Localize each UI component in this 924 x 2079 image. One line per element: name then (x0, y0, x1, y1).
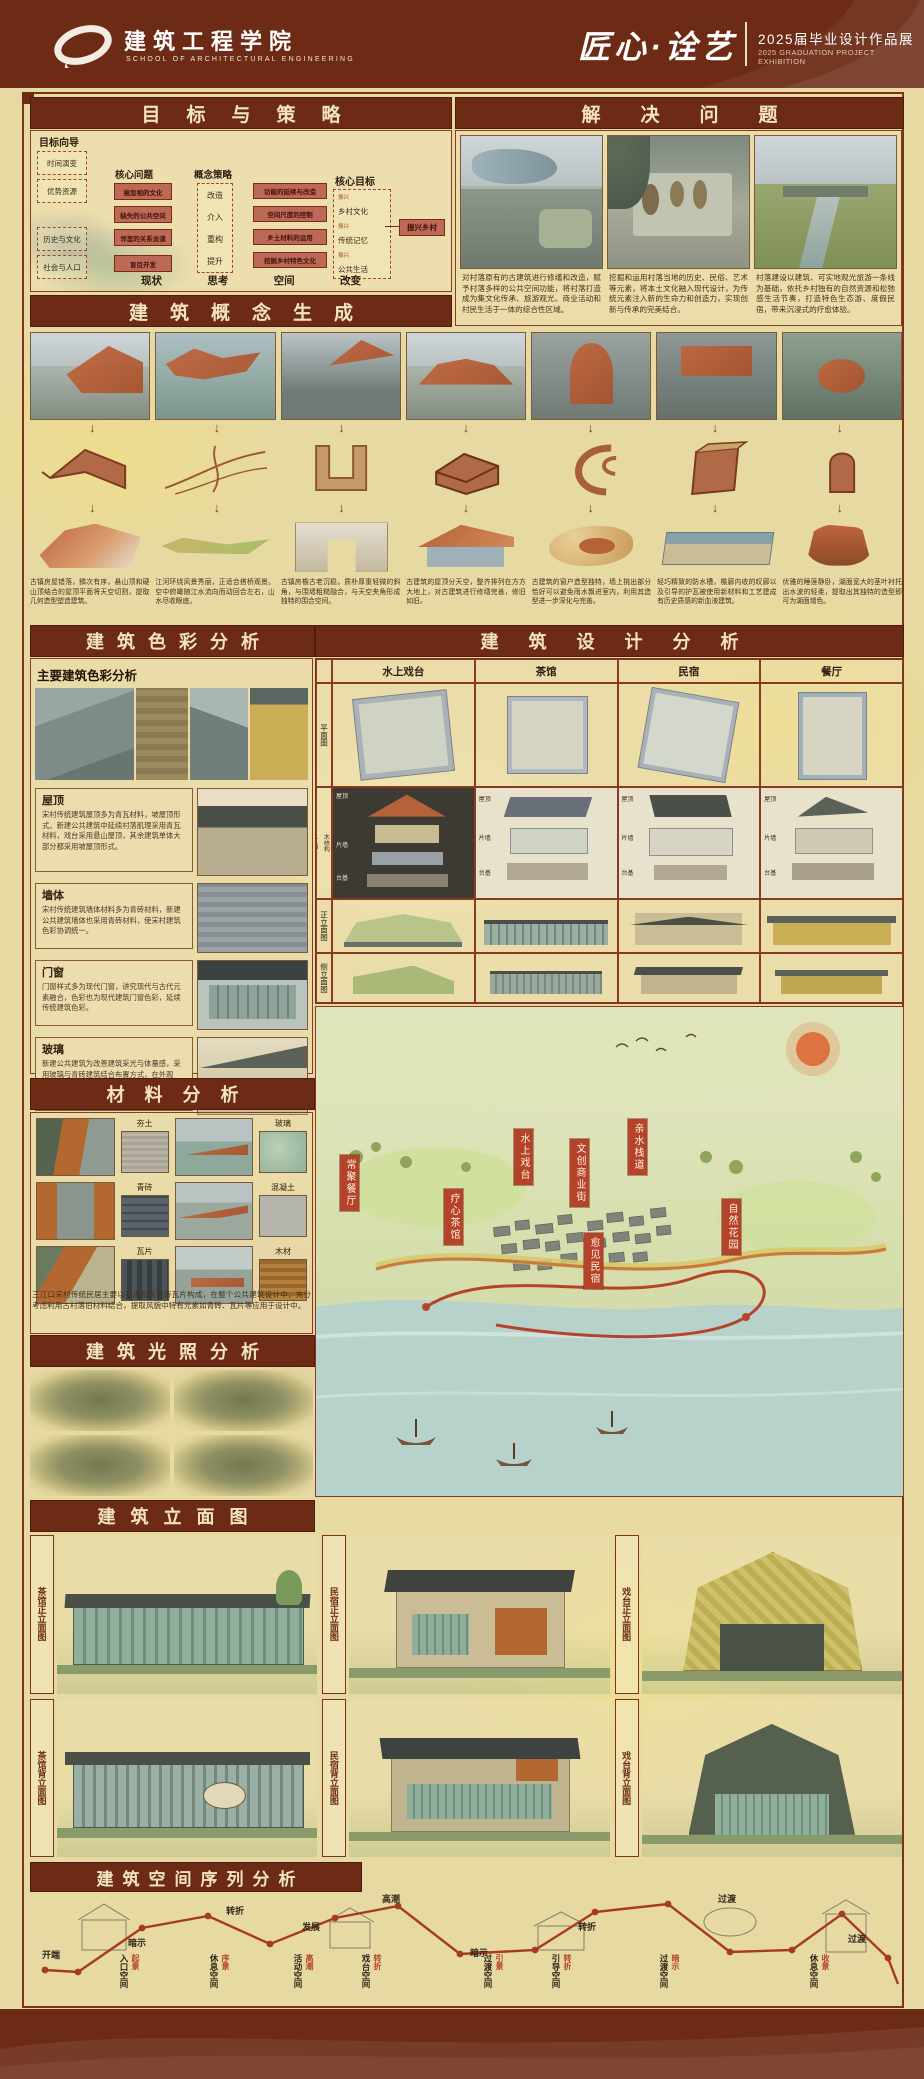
concept-model-hall (406, 518, 526, 574)
problem-paragraph: 村落建设以建筑、可实地观光旅游一条线为基础，依托乡村独有的自然资源和松弛感生活节… (756, 273, 895, 316)
concept-model-lotus (782, 518, 902, 574)
keyword: 空间 (274, 273, 295, 288)
village-aerial-photo (460, 135, 603, 269)
arrow-down-icon: ↓ (528, 500, 653, 515)
elevation-cell: 戏台背立面图 (615, 1699, 902, 1858)
sketch-roof-corner-icon (30, 438, 150, 500)
color-title: 建筑色彩分析 (73, 628, 272, 654)
rammed-earth-swatch (121, 1131, 169, 1173)
wall-render-photo (197, 883, 308, 953)
sequence-banner: 建筑空间序列分析 (30, 1862, 362, 1892)
problems-title: 解决问题 (541, 100, 817, 127)
seq-space-name: 休息空间 (808, 1954, 820, 1988)
concept-sketch-row (30, 438, 902, 500)
sketch-flow-curves-icon (155, 438, 275, 500)
seq-space: 休息空间 序景 (208, 1954, 231, 1988)
strategy-box: 改造 介入 重构 提升 (197, 183, 233, 273)
seq-space-tag: 引景 (494, 1954, 505, 1988)
glass-context-photo (175, 1118, 254, 1176)
goal-item-small: 振兴 (338, 222, 349, 230)
seq-stage-label: 过渡 (848, 1932, 866, 1945)
seq-stage-label: 发展 (302, 1920, 320, 1933)
arrow-down-icon: ↓ (777, 420, 902, 435)
seq-space-tag: 转折 (372, 1954, 383, 1988)
goal-guide-label: 目标向导 (39, 134, 79, 149)
color-banner: 建筑色彩分析 (30, 625, 315, 657)
seq-space-name: 活动空间 (292, 1954, 304, 1988)
problem-column: 村落建设以建筑、可实地观光旅游一条线为基础，依托乡村独有的自然资源和松弛感生活节… (754, 135, 897, 321)
concept-caption-row: 古镇房屋错落，鳞次有序，悬山顶和硬山顶结合的屋顶平面将天空切割，提取几何造型塑造… (30, 578, 902, 607)
design-table: 水上戏台 茶馆 民宿 餐厅 平面图 屋顶 爆炸分析图 木结构 片墙 台基 屋顶 … (315, 658, 904, 1004)
masterplan-tag-boardwalk: 亲水栈道 (628, 1119, 647, 1175)
side-cell-homestay (618, 953, 761, 1003)
front-cell-stage (332, 899, 475, 953)
measure-box: 挖掘乡村特色文化 (253, 252, 327, 268)
core-problems-label: 核心问题 (115, 167, 153, 181)
seq-space-name: 戏台空间 (360, 1954, 372, 1988)
material-item: 混凝土 (259, 1182, 307, 1240)
homestay-back-art (349, 1699, 609, 1858)
arrow-down-icon: ↓ (404, 500, 529, 515)
concept-caption: 轻巧精致的防水槽，檐廊内收的叹廊以及引导的护瓦被使用新材料和工艺建成有历史质感的… (657, 578, 776, 607)
problem-column: 挖掘和运用村落当地的历史、民俗、艺术等元素，将本土文化融入现代设计，为传统元素注… (607, 135, 750, 321)
front-cell-homestay (618, 899, 761, 953)
school-name-en: SCHOOL OF ARCHITECTURAL ENGINEERING (126, 56, 355, 63)
wall-box-text: 宋村传统建筑墙体材料多为青砖材料，新建公共建筑墙体也采用青砖材料，使宋村建筑色彩… (42, 905, 186, 937)
masterplan-tag-restaurant: 常聚餐厅 (340, 1155, 359, 1211)
arrow-down-icon: ↓ (30, 500, 155, 515)
input-box: 时间演变 (37, 151, 87, 175)
sketch-arch-door-icon (782, 438, 902, 500)
roof-row: 屋顶 宋村传统建筑屋顶多为青瓦材料，坡屋顶形式。新建公共建筑中延续村落肌理采用青… (35, 788, 308, 876)
seq-space: 过渡空间 引景 (482, 1954, 505, 1988)
arrow-down-icon: ↓ (404, 420, 529, 435)
gable-photo (190, 688, 248, 780)
roof-box-text: 宋村传统建筑屋顶多为青瓦材料，坡屋顶形式。新建公共建筑中延续村落肌理采用青瓦材料… (42, 810, 186, 852)
table-corner (316, 659, 332, 683)
measure-box: 功能的延续与改造 (253, 183, 327, 199)
seq-space: 戏台空间 转折 (360, 1954, 383, 1988)
seq-stage-label: 转折 (226, 1904, 244, 1917)
flow-connector (385, 226, 399, 227)
col-header-restaurant: 餐厅 (760, 659, 903, 683)
explode-cell-stage: 屋顶 片墙 台基 (332, 787, 475, 899)
exhibition-title: 匠心·诠艺 (578, 22, 737, 68)
color-panel: 主要建筑色彩分析 屋顶 宋村传统建筑屋顶多为青瓦材料，坡屋顶形式。新建公共建筑中… (30, 658, 313, 1074)
wall-photo (35, 688, 134, 780)
row-label-front: 正立面图 (316, 899, 332, 953)
seq-space-tag: 收景 (820, 1954, 831, 1988)
concept-arrow-row-2: ↓ ↓ ↓ ↓ ↓ ↓ ↓ (30, 500, 902, 515)
arrow-down-icon: ↓ (279, 500, 404, 515)
strategy-item: 改造 (207, 190, 223, 201)
masterplan-tag-stage: 水上戏台 (514, 1129, 533, 1185)
sequence-path (30, 1892, 902, 2004)
elevation-cell: 戏台正立面图 (615, 1535, 902, 1694)
arrow-down-icon: ↓ (528, 420, 653, 435)
seq-space-tag: 起景 (130, 1954, 141, 1988)
seq-stage-label: 过渡 (718, 1892, 736, 1905)
concept-photo-gate (531, 332, 651, 420)
wall-row: 墙体 宋村传统建筑墙体材料多为青砖材料，新建公共建筑墙体也采用青砖材料，使宋村建… (35, 883, 308, 953)
masterplan-panel: 常聚餐厅 水上戏台 文创商业街 亲水栈道 疗心茶馆 愈见民宿 自然花园 (315, 1006, 904, 1497)
keywords-row: 现状 思考 空间 改变 (141, 273, 361, 288)
sunlight-study-image (30, 1370, 170, 1431)
concept-banner: 建筑概念生成 (30, 295, 452, 327)
sunlight-study-image (30, 1435, 170, 1496)
explode-cell-homestay: 屋顶 片墙 台基 (618, 787, 761, 899)
stage-back-art (642, 1699, 902, 1858)
window-box-text: 门窗样式多为现代门窗，讲究现代与古代元素融合，色彩也为现代建筑门窗色彩，延续传统… (42, 982, 186, 1014)
strategy-item: 介入 (207, 212, 223, 223)
concept-caption: 古镇房檐古老沉稳，质朴厚重轻微的斜角，与围墙粗糙融合，与天空夹角形成独特的围合空… (281, 578, 400, 607)
explode-cell-teahouse: 屋顶 片墙 台基 (475, 787, 618, 899)
problem-paragraph: 挖掘和运用村落当地的历史、民俗、艺术等元素，将本土文化融入现代设计，为传统元素注… (609, 273, 748, 316)
elevation-label: 民宿背立面图 (322, 1699, 346, 1858)
elevation-label: 民宿正立面图 (322, 1535, 346, 1694)
concept-title: 建筑概念生成 (107, 298, 375, 325)
color-collage (35, 688, 308, 780)
elevation-cell: 茶馆正立面图 (30, 1535, 317, 1694)
seq-stage-label: 高潮 (382, 1892, 400, 1905)
seq-space-tag: 高潮 (304, 1954, 315, 1988)
masterplan-illustration (316, 1007, 903, 1496)
measure-box: 空间尺度的控制 (253, 206, 327, 222)
teahouse-back-art (57, 1699, 317, 1858)
core-goal-label: 核心目标 (335, 173, 375, 188)
concrete-path-photo (175, 1182, 254, 1240)
cell-part: 片墙 (622, 834, 634, 845)
material-row: 夯土 玻璃 (36, 1118, 307, 1176)
cell-part: 屋顶 (336, 792, 348, 803)
seq-stage-label: 转折 (578, 1920, 596, 1933)
seq-space-name: 入口空间 (118, 1954, 130, 1988)
cell-part: 屋顶 (622, 795, 634, 806)
concept-model-theater (30, 518, 150, 574)
concept-model-curve (531, 518, 651, 574)
design-title: 建筑设计分析 (451, 628, 769, 654)
side-cell-teahouse (475, 953, 618, 1003)
concept-photo-window (656, 332, 776, 420)
material-row: 青砖 混凝土 (36, 1182, 307, 1240)
cell-part: 屋顶 (764, 795, 776, 806)
arrow-down-icon: ↓ (155, 500, 280, 515)
seq-space-name: 过渡空间 (482, 1954, 494, 1988)
poster-root: { "header": { "school_cn": "建筑工程学院", "sc… (0, 0, 924, 2079)
problems-panel: 对村落原有的古建筑进行修缮和改造，赋予村落多样的公共空间功能，将村落打造成为集文… (455, 130, 902, 326)
col-header-homestay: 民宿 (618, 659, 761, 683)
goals-title: 目标与策略 (115, 100, 366, 127)
sketch-wall-slab-icon (656, 438, 776, 500)
keyword: 现状 (141, 273, 162, 288)
window-row: 门窗 门窗样式多为现代门窗，讲究现代与古代元素融合，色彩也为现代建筑门窗色彩，延… (35, 960, 308, 1030)
row-label-side: 侧立面图 (316, 953, 332, 1003)
materials-banner: 材料分析 (30, 1078, 315, 1110)
material-label: 青砖 (121, 1182, 169, 1193)
masterplan-tag-street: 文创商业街 (570, 1139, 589, 1207)
elevation-label: 茶馆背立面图 (30, 1699, 54, 1858)
brick-lane-photo (36, 1182, 115, 1240)
problem-box: 缺失的公共空间 (114, 206, 172, 223)
keyword: 改变 (340, 273, 361, 288)
seq-space: 休息空间 收景 (808, 1954, 831, 1988)
goals-flowchart: 目标向导 时间演变 优势资源 历史与文化 社会与人口 核心问题 被忽视的文化 缺… (30, 130, 452, 292)
seq-space: 过渡空间 暗示 (658, 1954, 681, 1988)
explode-cell-restaurant: 屋顶 片墙 台基 (760, 787, 903, 899)
concept-caption: 优雅的睡莲静卧，湖面宽大的茎叶衬托出水波的轻柔，提取出其独特的造型即可为湖面增色… (783, 578, 902, 607)
culture-wall-photo (607, 135, 750, 269)
plan-cell-teahouse (475, 683, 618, 787)
sunlight-study-image (174, 1370, 314, 1431)
concept-photo-roofs (406, 332, 526, 420)
window-render-photo (197, 960, 308, 1030)
plan-cell-stage (332, 683, 475, 787)
material-label: 木材 (259, 1246, 307, 1257)
seq-space-tag: 暗示 (670, 1954, 681, 1988)
elevation-cell: 民宿背立面图 (322, 1699, 609, 1858)
arrow-down-icon: ↓ (653, 420, 778, 435)
plan-cell-homestay (618, 683, 761, 787)
concept-photo-row (30, 332, 902, 420)
goal-item-small: 振兴 (338, 193, 349, 201)
plan-cell-restaurant (760, 683, 903, 787)
concept-photo-lotus (782, 332, 902, 420)
sequence-diagram: 开端 暗示 转折 发展 高潮 暗示 转折 过渡 过渡 入口空间 起景 休息空间 … (30, 1892, 902, 2004)
cell-part: 台基 (764, 869, 776, 880)
goal-item: 乡村文化 (338, 206, 368, 217)
problem-box: 盲目开发 (114, 255, 172, 272)
strategy-label: 概念策略 (194, 167, 232, 181)
elevation-cell: 民宿正立面图 (322, 1535, 609, 1694)
concept-model-longhouse (656, 518, 776, 574)
teahouse-front-art (57, 1535, 317, 1694)
problem-column: 对村落原有的古建筑进行修缮和改造，赋予村落多样的公共空间功能，将村落打造成为集文… (460, 135, 603, 321)
concept-caption: 古建筑的窗户造型独特，墙上挑出部分恰好可以避免雨水飘进室内，利用其造型进一步深化… (532, 578, 651, 607)
cell-part: 片墙 (336, 841, 348, 852)
header-divider (745, 22, 747, 66)
header-bar: 建筑工程学院 SCHOOL OF ARCHITECTURAL ENGINEERI… (0, 0, 924, 88)
explode-part: 木结构 (319, 834, 330, 852)
problem-paragraph: 对村落原有的古建筑进行修缮和改造，赋予村落多样的公共空间功能，将村落打造成为集文… (462, 273, 601, 316)
goal-item-small: 振兴 (338, 251, 349, 259)
school-logo-icon (52, 22, 114, 68)
footer-swoosh-decoration (0, 2009, 924, 2079)
material-label: 玻璃 (259, 1118, 307, 1129)
strategy-item: 提升 (207, 256, 223, 267)
masterplan-tag-teahouse: 疗心茶馆 (444, 1189, 463, 1245)
design-banner: 建筑设计分析 (315, 625, 904, 657)
material-item: 玻璃 (259, 1118, 307, 1176)
seq-space-tag: 序景 (220, 1954, 231, 1988)
window-box: 门窗 门窗样式多为现代门窗，讲究现代与古代元素融合，色彩也为现代建筑门窗色彩，延… (35, 960, 193, 1026)
wall-box: 墙体 宋村传统建筑墙体材料多为青砖材料，新建公共建筑墙体也采用青砖材料，使宋村建… (35, 883, 193, 949)
cell-part: 台基 (336, 874, 348, 885)
row-label-explode: 屋顶 爆炸分析图 木结构 片墙 台基 (316, 787, 332, 899)
measure-box: 乡土材料的运用 (253, 229, 327, 245)
seq-space: 引导空间 转折 (550, 1954, 573, 1988)
seq-space-name: 引导空间 (550, 1954, 562, 1988)
seq-space-tag: 转折 (562, 1954, 573, 1988)
lighting-banner: 建筑光照分析 (30, 1335, 315, 1367)
materials-title: 材料分析 (87, 1081, 259, 1107)
keyword: 思考 (207, 273, 228, 288)
sketch-house-icon (406, 438, 526, 500)
window-box-title: 门窗 (42, 964, 186, 980)
material-item: 青砖 (121, 1182, 169, 1240)
wall-box-title: 墙体 (42, 887, 186, 903)
front-cell-teahouse (475, 899, 618, 953)
elevations-banner: 建筑立面图 (30, 1500, 315, 1532)
col-header-teahouse: 茶馆 (475, 659, 618, 683)
cell-part: 片墙 (764, 834, 776, 845)
roof-render-photo (197, 788, 308, 876)
concept-caption: 古镇房屋错落，鳞次有序，悬山顶和硬山顶结合的屋顶平面将天空切割，提取几何造型塑造… (30, 578, 149, 607)
concept-model-bridge (155, 518, 275, 574)
arrow-down-icon: ↓ (155, 420, 280, 435)
material-label: 瓦片 (121, 1246, 169, 1257)
sketch-hook-arc-icon (531, 438, 651, 500)
explode-part: 片墙 (316, 837, 319, 849)
exhibition-cn: 2025届毕业设计作品展 (758, 28, 914, 48)
cell-part: 台基 (479, 869, 491, 880)
roof-box: 屋顶 宋村传统建筑屋顶多为青瓦材料，坡屋顶形式。新建公共建筑中延续村落肌理采用青… (35, 788, 193, 872)
yellow-wall-photo (250, 688, 308, 780)
rammed-earth-photo (36, 1118, 115, 1176)
elevation-label: 茶馆正立面图 (30, 1535, 54, 1694)
goal-result-box: 振兴乡村 (399, 219, 445, 236)
concrete-swatch (259, 1195, 307, 1237)
lighting-grid (30, 1370, 313, 1496)
seq-space: 入口空间 起景 (118, 1954, 141, 1988)
color-subtitle: 主要建筑色彩分析 (37, 665, 308, 684)
roof-box-title: 屋顶 (42, 792, 186, 808)
elevations-title: 建筑立面图 (83, 1503, 263, 1529)
concept-caption: 江河环绕风景秀丽，正适合搭桥观景。空中俯瞰随江水流向而动回合左右，山水尽收眼底。 (155, 578, 274, 607)
masterplan-tag-garden: 自然花园 (722, 1199, 741, 1255)
arrow-down-icon: ↓ (279, 420, 404, 435)
cell-part: 台基 (622, 869, 634, 880)
school-name: 建筑工程学院 (124, 24, 298, 56)
elevation-cell: 茶馆背立面图 (30, 1699, 317, 1858)
footer-bar (0, 2009, 924, 2079)
goals-banner: 目标与策略 (30, 97, 452, 129)
seq-space: 活动空间 高潮 (292, 1954, 315, 1988)
seq-space-name: 过渡空间 (658, 1954, 670, 1988)
cell-part: 屋顶 (479, 795, 491, 806)
masterplan-tag-homestay: 愈见民宿 (584, 1233, 603, 1289)
arrow-down-icon: ↓ (777, 500, 902, 515)
concept-photo-eave (30, 332, 150, 420)
stage-front-art (642, 1535, 902, 1694)
elevations-grid: 茶馆正立面图 民宿正立面图 戏台正立面图 茶馆背立面图 (30, 1535, 902, 1857)
row-label-plan: 平面图 (316, 683, 332, 787)
concept-photo-river (155, 332, 275, 420)
seq-stage-label: 暗示 (128, 1936, 146, 1949)
concept-render-row (30, 518, 902, 574)
col-header-stage: 水上戏台 (332, 659, 475, 683)
strategy-item: 重构 (207, 234, 223, 245)
material-item: 夯土 (121, 1118, 169, 1176)
river-field-photo (754, 135, 897, 269)
problems-banner: 解决问题 (455, 97, 904, 129)
problem-box: 邻里的关系淡漠 (114, 229, 172, 246)
cell-part: 片墙 (479, 834, 491, 845)
concept-model-courtyard (281, 518, 401, 574)
concept-arrow-row-1: ↓ ↓ ↓ ↓ ↓ ↓ ↓ (30, 420, 902, 435)
arrow-down-icon: ↓ (653, 500, 778, 515)
concept-caption: 古建筑的屋顶分天空，整齐排列在方方大地上，对古建筑进行修缮完善，修旧如旧。 (406, 578, 525, 607)
side-cell-restaurant (760, 953, 903, 1003)
exhibition-en: 2025 GRADUATION PROJECT EXHIBITION (758, 48, 924, 66)
lighting-title: 建筑光照分析 (73, 1338, 272, 1364)
input-box: 社会与人口 (37, 255, 87, 279)
sequence-title: 建筑空间序列分析 (88, 1865, 305, 1890)
materials-note: 三江口宋村传统民居主要以石木和灰青砖瓦片构成，在整个公共建筑设计中，充分考虑利用… (32, 1290, 311, 1311)
material-label: 混凝土 (259, 1182, 307, 1193)
seq-space-name: 休息空间 (208, 1954, 220, 1988)
side-cell-stage (332, 953, 475, 1003)
concept-photo-wall (281, 332, 401, 420)
glass-swatch (259, 1131, 307, 1173)
sketch-u-shape-icon (281, 438, 401, 500)
arrow-down-icon: ↓ (30, 420, 155, 435)
brick-swatch (121, 1195, 169, 1237)
elevation-label: 戏台正立面图 (615, 1535, 639, 1694)
material-label: 夯土 (121, 1118, 169, 1129)
homestay-front-art (349, 1535, 609, 1694)
glass-box-title: 玻璃 (42, 1041, 186, 1057)
seq-stage-label: 开端 (42, 1948, 60, 1961)
brick-photo (136, 688, 188, 780)
goal-item: 传统记忆 (338, 235, 368, 246)
elevation-label: 戏台背立面图 (615, 1699, 639, 1858)
sunlight-study-image (174, 1435, 314, 1496)
problem-box: 被忽视的文化 (114, 183, 172, 200)
input-box: 优势资源 (37, 179, 87, 203)
core-goal-box: 振兴 乡村文化 振兴 传统记忆 振兴 公共生活 (333, 189, 391, 279)
input-box: 历史与文化 (37, 227, 87, 251)
front-cell-restaurant (760, 899, 903, 953)
